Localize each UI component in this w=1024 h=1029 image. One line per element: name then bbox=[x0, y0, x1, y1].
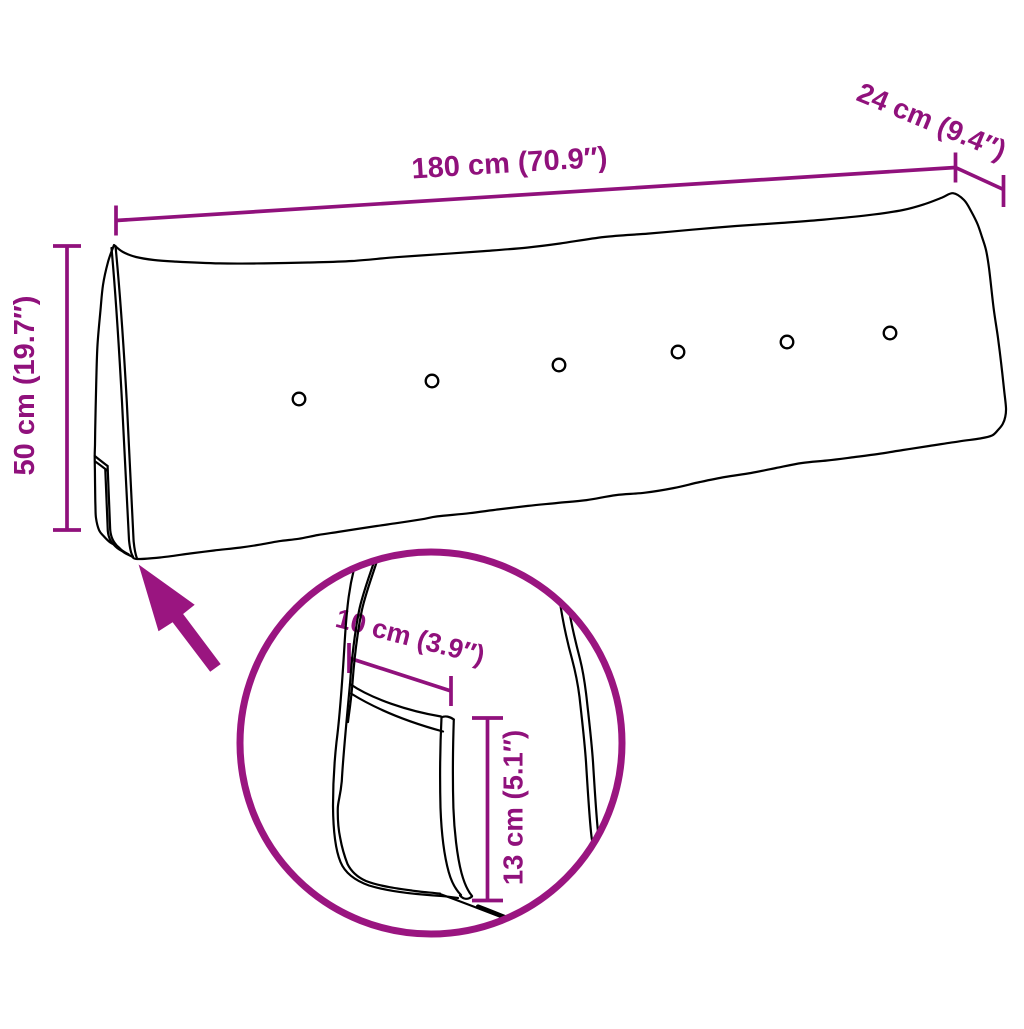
svg-text:50 cm (19.7″): 50 cm (19.7″) bbox=[9, 296, 41, 476]
svg-text:13 cm (5.1″): 13 cm (5.1″) bbox=[498, 730, 529, 885]
